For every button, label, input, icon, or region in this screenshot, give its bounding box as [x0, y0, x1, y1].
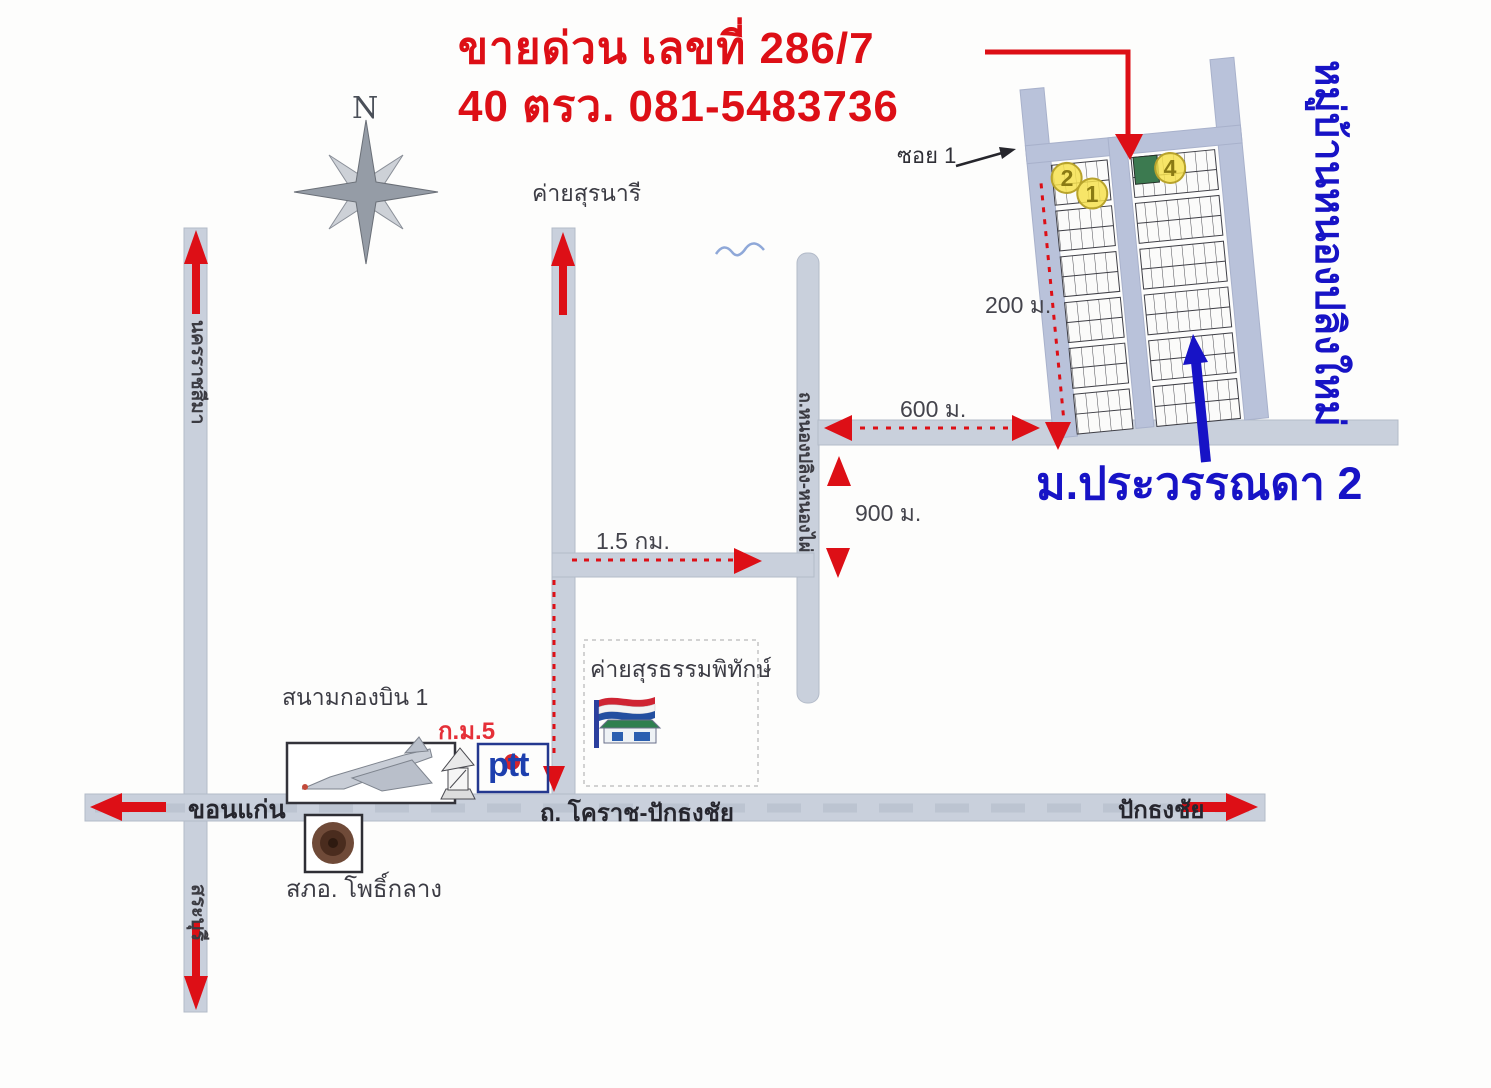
arrow-down-900m — [826, 548, 850, 578]
police-station-label: สภอ. โพธิ์กลาง — [286, 876, 442, 904]
plot-number-4: 4 — [1164, 155, 1177, 181]
km5-label: ก.ม.5 — [438, 718, 495, 746]
east-vertical-road-label: ถ.หนองปลิง-หนองไผ่ — [795, 392, 816, 552]
plot-number-2: 2 — [1061, 165, 1074, 191]
camp-roof — [600, 720, 660, 728]
arrow-soi1 — [999, 147, 1016, 159]
compass-rose — [294, 120, 438, 264]
plot-number-1: 1 — [1086, 181, 1099, 207]
west-direction-label: ขอนแก่น — [188, 796, 286, 825]
estate-name-label: ม.ประวรรณดา 2 — [1036, 458, 1362, 510]
camp-flag-icon — [594, 697, 660, 748]
soi1-label: ซอย 1 — [897, 143, 956, 168]
south-direction-label: สระบุรี — [186, 884, 209, 941]
jet-nose — [302, 784, 308, 790]
map-page: ขายด่วน เลขที่ 286/7 40 ตรว. 081-5483736… — [0, 0, 1491, 1088]
sketch-doodle — [716, 243, 764, 255]
police-badge-icon — [305, 815, 362, 872]
village-name-side-label: หมู่บ้านหนองปลิงใหม่ — [1306, 60, 1352, 427]
sale-headline-line1: ขายด่วน เลขที่ 286/7 — [458, 24, 875, 75]
distance-200m-label: 200 ม. — [985, 292, 1051, 318]
main-road-label: ถ. โคราช-ปักธงชัย — [540, 800, 734, 828]
airbase-icon — [287, 737, 455, 803]
subdivision-block — [1019, 57, 1269, 438]
connector-road — [552, 553, 814, 577]
east-direction-label: ปักธงชัย — [1118, 797, 1204, 825]
badge-center — [328, 838, 338, 848]
distance-600m-label: 600 ม. — [900, 396, 966, 422]
camp-surathampitak-label: ค่ายสุรธรรมพิทักษ์ — [590, 656, 771, 682]
distance-1-5km-label: 1.5 กม. — [596, 528, 670, 554]
camp-door-2 — [634, 732, 650, 741]
north-direction-label: นครราชสีมา — [186, 320, 208, 424]
airbase-label: สนามกองบิน 1 — [282, 684, 428, 710]
compass-main-star — [294, 120, 438, 264]
soi1-pointer — [956, 147, 1016, 166]
compass-north-label: N — [352, 92, 378, 127]
camp-suranari-label: ค่ายสุรนารี — [532, 180, 641, 206]
sale-headline-line2: 40 ตรว. 081-5483736 — [458, 82, 899, 133]
camp-door-1 — [612, 732, 623, 741]
map-canvas — [0, 0, 1491, 1088]
ptt-logo-text: ptt — [488, 746, 528, 785]
arrow-up-900m — [827, 456, 851, 486]
flag-pole — [594, 700, 599, 748]
distance-900m-label: 900 ม. — [855, 500, 921, 526]
